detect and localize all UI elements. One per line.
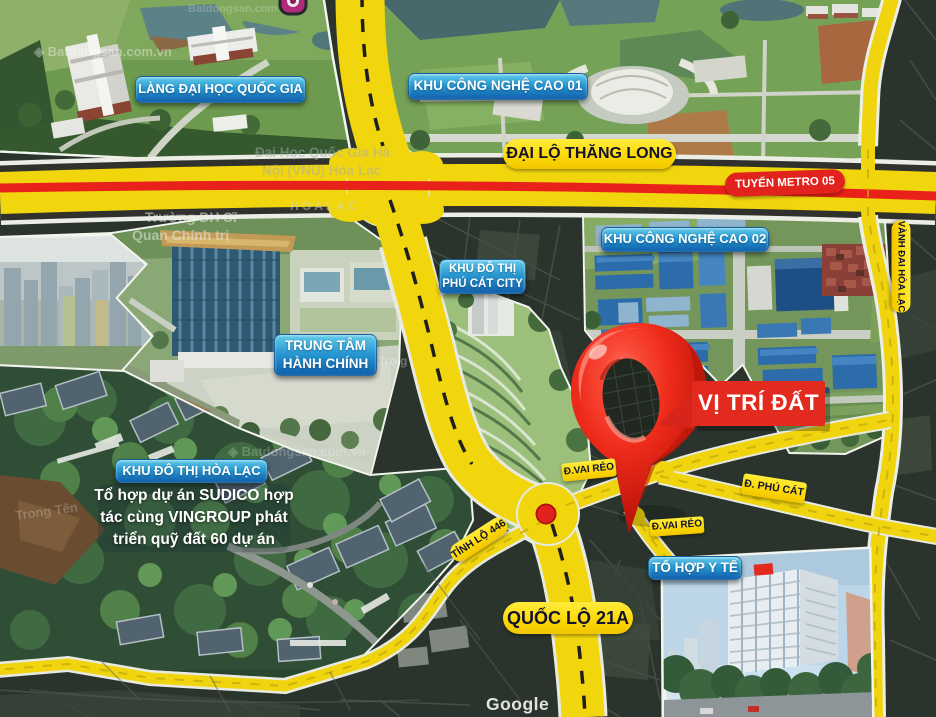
svg-text:H Ò A L Ạ C: H Ò A L Ạ C [290,198,357,213]
svg-text:◈ Batdongsan.com.vn: ◈ Batdongsan.com.vn [33,44,172,59]
svg-text:Tro.g: Tro.g [378,354,407,368]
svg-text:Trường ĐH Sĩ: Trường ĐH Sĩ [145,209,238,225]
svg-text:Google: Google [486,694,549,714]
svg-text:Quan Chính trị: Quan Chính trị [132,227,229,243]
svg-text:Batdongsan.com: Batdongsan.com [188,3,277,15]
svg-text:Đại Học Quốc Gia Hà: Đại Học Quốc Gia Hà [255,145,391,160]
svg-text:◈ Batdongsan.com.vn: ◈ Batdongsan.com.vn [227,444,366,459]
svg-text:Nội (VNU) Hòa Lạc: Nội (VNU) Hòa Lạc [262,163,382,178]
